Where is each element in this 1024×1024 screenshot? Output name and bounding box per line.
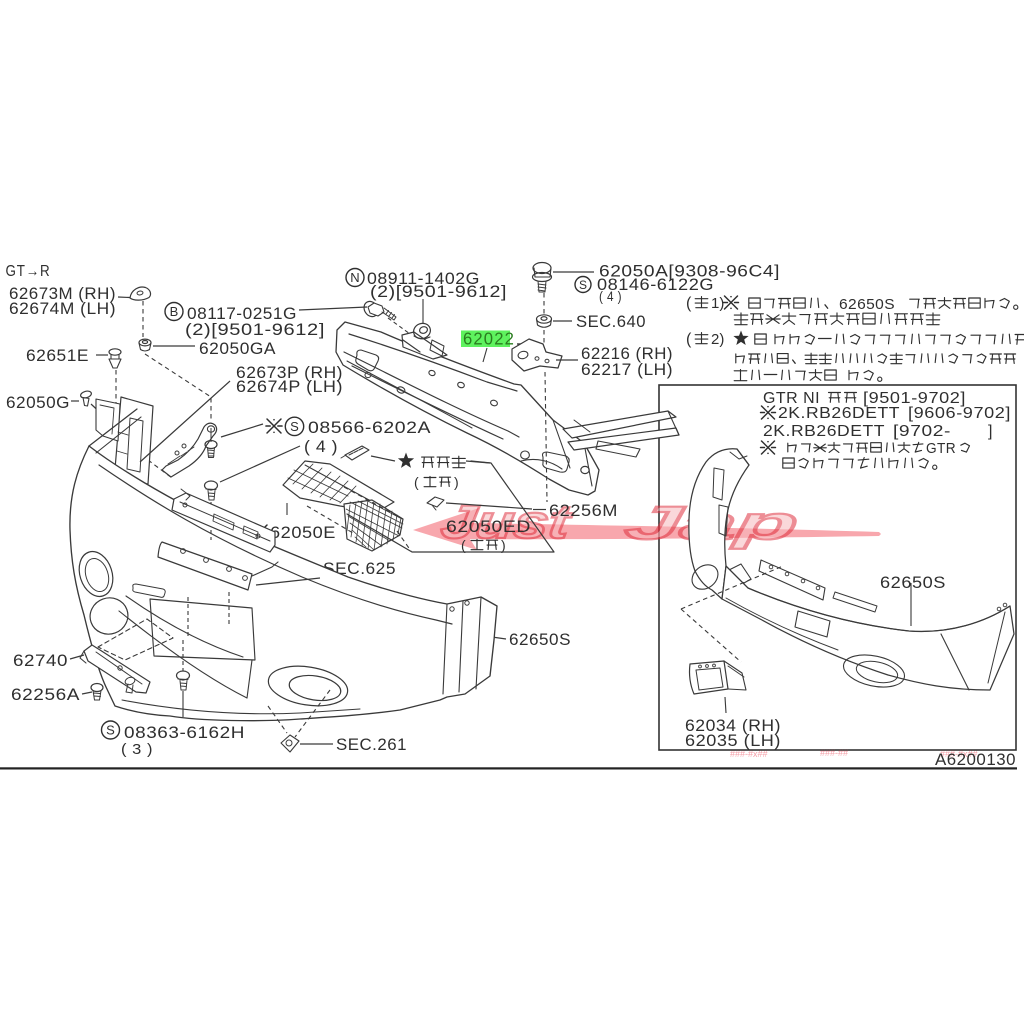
svg-text:S: S (106, 723, 115, 738)
svg-text:S: S (290, 419, 299, 434)
svg-text:(: ( (686, 295, 692, 312)
svg-text:62674P (LH): 62674P (LH) (236, 377, 343, 396)
svg-text:SEC.261: SEC.261 (336, 735, 407, 754)
svg-text:]: ] (988, 423, 992, 440)
svg-text:62217 (LH): 62217 (LH) (581, 360, 673, 379)
svg-text:62035 (LH): 62035 (LH) (685, 731, 781, 750)
svg-text:2K.RB26DETT: 2K.RB26DETT (763, 423, 885, 440)
svg-text:###-##: ###-## (820, 748, 848, 758)
svg-text:(2)[9501-9612]: (2)[9501-9612] (370, 282, 507, 301)
svg-text:(: ( (686, 331, 692, 348)
svg-text:): ) (454, 474, 459, 490)
svg-text:62050GA: 62050GA (199, 339, 276, 358)
svg-text:62740: 62740 (13, 651, 68, 670)
svg-text:2): 2) (711, 331, 724, 348)
svg-text:): ) (501, 537, 506, 553)
svg-text:B: B (170, 304, 179, 319)
svg-text:SEC.640: SEC.640 (576, 312, 646, 331)
svg-text:A6200130: A6200130 (935, 750, 1016, 769)
svg-text:GTR: GTR (926, 440, 956, 457)
svg-text:08363-6162H: 08363-6162H (124, 723, 245, 742)
svg-text:[9606-9702]: [9606-9702] (908, 405, 1011, 422)
svg-text:62674M (LH): 62674M (LH) (9, 299, 116, 318)
svg-text:(2)[9501-9612]: (2)[9501-9612] (185, 320, 325, 339)
svg-text:62650S: 62650S (880, 573, 946, 592)
svg-text:( 4 ): ( 4 ) (599, 288, 622, 304)
svg-text:62050E: 62050E (270, 523, 336, 542)
svg-text:N: N (350, 270, 359, 285)
svg-text:( 4 ): ( 4 ) (304, 437, 338, 456)
svg-text:1): 1) (711, 295, 724, 312)
svg-text:GT→R: GT→R (6, 263, 51, 280)
svg-text:62050G: 62050G (6, 393, 70, 412)
svg-text:(: ( (461, 537, 466, 553)
svg-text:08566-6202A: 08566-6202A (308, 418, 431, 437)
svg-text:62256A: 62256A (11, 685, 80, 704)
svg-text:62022: 62022 (463, 329, 515, 349)
svg-text:2K.RB26DETT: 2K.RB26DETT (778, 405, 900, 422)
svg-text:62650S: 62650S (839, 296, 895, 313)
svg-text:62650S: 62650S (509, 630, 571, 649)
svg-text:62651E: 62651E (26, 346, 89, 365)
svg-text:62050ED: 62050ED (446, 517, 531, 536)
svg-text:S: S (579, 278, 587, 292)
svg-text:###-#x##: ###-#x## (730, 749, 768, 759)
svg-text:(: ( (414, 474, 419, 490)
svg-text:( 3 ): ( 3 ) (121, 741, 153, 758)
svg-text:[9702-: [9702- (893, 423, 951, 440)
svg-text:62256M: 62256M (549, 501, 618, 520)
